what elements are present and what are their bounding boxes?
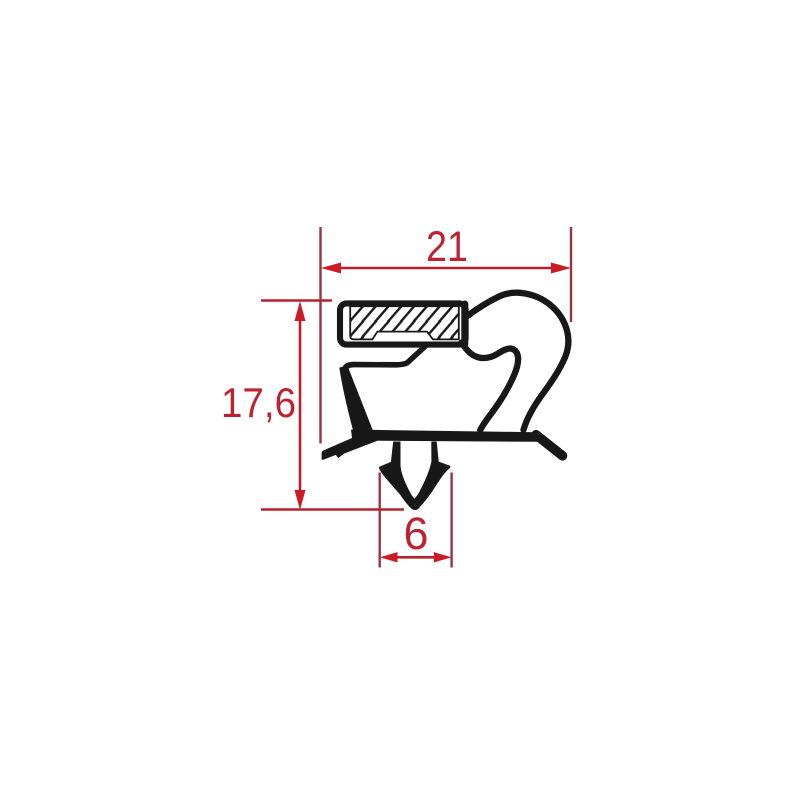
svg-text:17,6: 17,6	[221, 379, 296, 426]
svg-text:6: 6	[404, 508, 429, 559]
svg-text:21: 21	[426, 223, 468, 271]
